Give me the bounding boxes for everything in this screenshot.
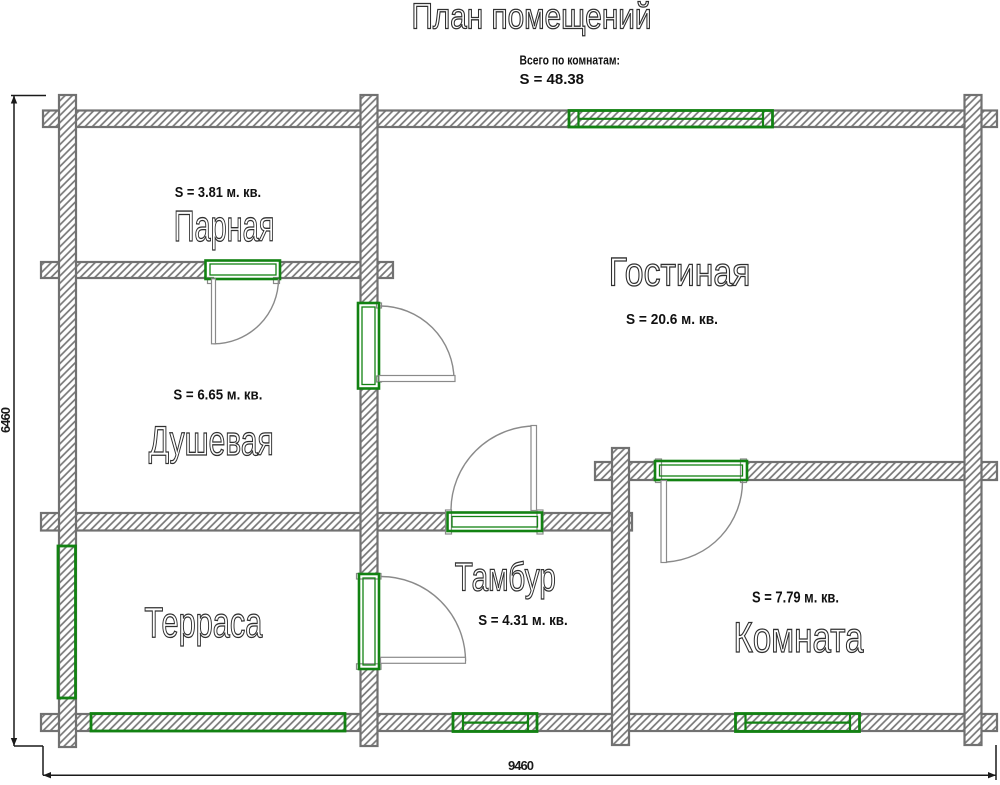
svg-text:Душевая: Душевая: [149, 417, 274, 464]
svg-text:Гостиная: Гостиная: [609, 251, 751, 295]
svg-text:S = 6.65 м. кв.: S = 6.65 м. кв.: [173, 388, 262, 404]
svg-text:S = 4.31 м. кв.: S = 4.31 м. кв.: [478, 613, 568, 629]
svg-text:Терраса: Терраса: [144, 600, 262, 647]
svg-text:S = 48.38: S = 48.38: [520, 72, 585, 88]
svg-text:Всего по комнатам:: Всего по комнатам:: [520, 54, 621, 68]
svg-text:9460: 9460: [508, 758, 534, 773]
svg-text:Комната: Комната: [734, 615, 864, 662]
svg-text:Тамбур: Тамбур: [455, 555, 556, 599]
svg-text:S = 3.81 м. кв.: S = 3.81 м. кв.: [175, 185, 261, 201]
svg-text:Парная: Парная: [174, 202, 275, 251]
svg-text:S = 20.6 м. кв.: S = 20.6 м. кв.: [626, 312, 718, 328]
svg-text:6460: 6460: [0, 407, 13, 433]
svg-text:План помещений: План помещений: [412, 0, 652, 37]
svg-text:S = 7.79 м. кв.: S = 7.79 м. кв.: [752, 590, 839, 607]
